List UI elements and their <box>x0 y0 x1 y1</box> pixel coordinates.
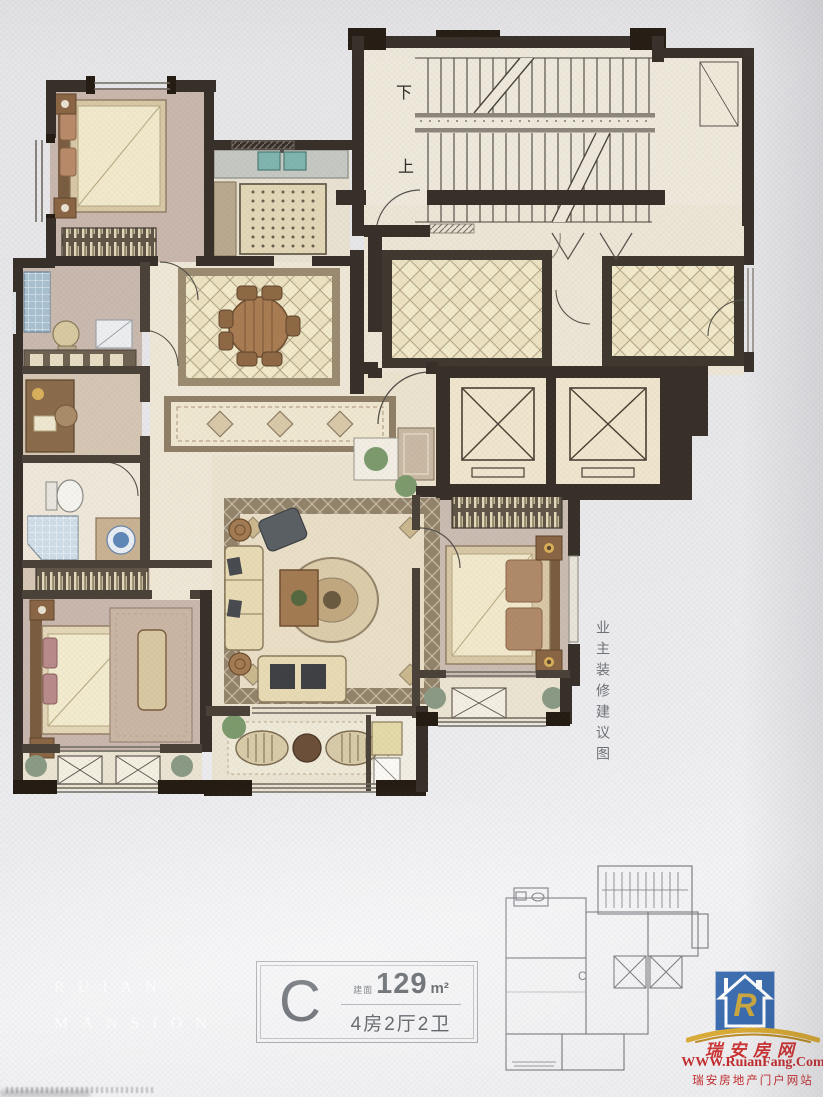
floorplan-drawing: 下 上 <box>0 0 823 1097</box>
corner-smudge <box>0 1090 90 1097</box>
wardrobe-1 <box>62 228 156 258</box>
balcony-plant <box>25 755 47 777</box>
lobby-window <box>748 268 753 352</box>
bed-bench <box>138 630 166 710</box>
area-value: 129 <box>376 968 427 1001</box>
loveseat-cushion <box>270 664 295 689</box>
toilet-tank <box>46 482 57 510</box>
master-headboard <box>30 620 42 740</box>
master-pillow <box>43 674 57 704</box>
kitchen-counter <box>214 150 348 178</box>
living-balcony <box>222 715 402 784</box>
balcony-cabinet <box>372 722 402 755</box>
unit-info-inner: C 建面 129 m² 4房2厅2卫 <box>260 965 474 1039</box>
elevator-block <box>436 366 692 500</box>
water-heater <box>53 321 79 347</box>
side-table <box>229 519 251 541</box>
dining-table <box>229 297 289 357</box>
desk-chair <box>55 405 77 427</box>
project-watermark: RUIAN MANSION <box>54 970 220 1042</box>
bed2-pillow <box>506 608 542 650</box>
landing-vent <box>430 224 474 233</box>
side-note: 业主装修建议图 <box>593 620 613 767</box>
lobby-left-tile <box>392 260 542 358</box>
keyplan-unit-label: C <box>578 969 587 983</box>
info-divider <box>341 1004 461 1005</box>
kitchen-sink <box>284 152 306 170</box>
balcony-table <box>293 734 321 762</box>
bed1-pillow <box>60 112 76 140</box>
kitchen-sink <box>258 152 280 170</box>
dining-area <box>178 268 340 386</box>
master-pillow <box>43 638 57 668</box>
loveseat-cushion <box>301 664 326 689</box>
layout-text: 4房2厅2卫 <box>339 1009 463 1036</box>
sofa-pillow <box>227 599 242 618</box>
watermark-line2: MANSION <box>54 1006 220 1042</box>
wardrobe-3 <box>452 496 562 528</box>
lounge-chair <box>236 731 288 765</box>
side-table <box>229 653 251 675</box>
desk-lamp <box>32 388 44 400</box>
bed2-pillow <box>506 560 542 602</box>
toilet <box>57 480 83 512</box>
logo-site-url: WWW.RuianFang.Com <box>670 1055 823 1071</box>
kitchen-cabinet <box>214 182 236 256</box>
table-plant <box>291 590 307 606</box>
bed1-pillow <box>60 148 76 176</box>
stair-up-label: 上 <box>398 158 414 176</box>
area-prefix: 建面 <box>353 983 373 996</box>
keyplan-stairs <box>602 872 688 908</box>
unit-letter: C <box>261 973 339 1031</box>
watermark-line1: RUIAN <box>54 970 220 1006</box>
area-line: 建面 129 m² <box>339 968 463 1001</box>
site-logo: R 瑞安房网 WWW.RuianFang.Com 瑞安房地产门户网站 <box>686 962 820 1088</box>
entry-mat <box>398 428 434 480</box>
unit-info-box: C 建面 129 m² 4房2厅2卫 <box>256 961 478 1043</box>
balcony-plant <box>424 687 446 709</box>
stair-down-label: 下 <box>396 85 412 102</box>
niche-plant <box>364 447 388 471</box>
area-unit: m² <box>431 980 449 997</box>
living-room <box>224 498 440 704</box>
balcony-plant <box>222 715 246 739</box>
lobby-right-tile <box>612 266 734 356</box>
floorplan-photo-page: 下 上 <box>0 0 823 1097</box>
key-plan: C <box>506 866 708 1070</box>
logo-tagline: 瑞安房地产门户网站 <box>664 1072 823 1088</box>
passage-floor <box>150 458 212 600</box>
balcony-plant <box>171 755 193 777</box>
